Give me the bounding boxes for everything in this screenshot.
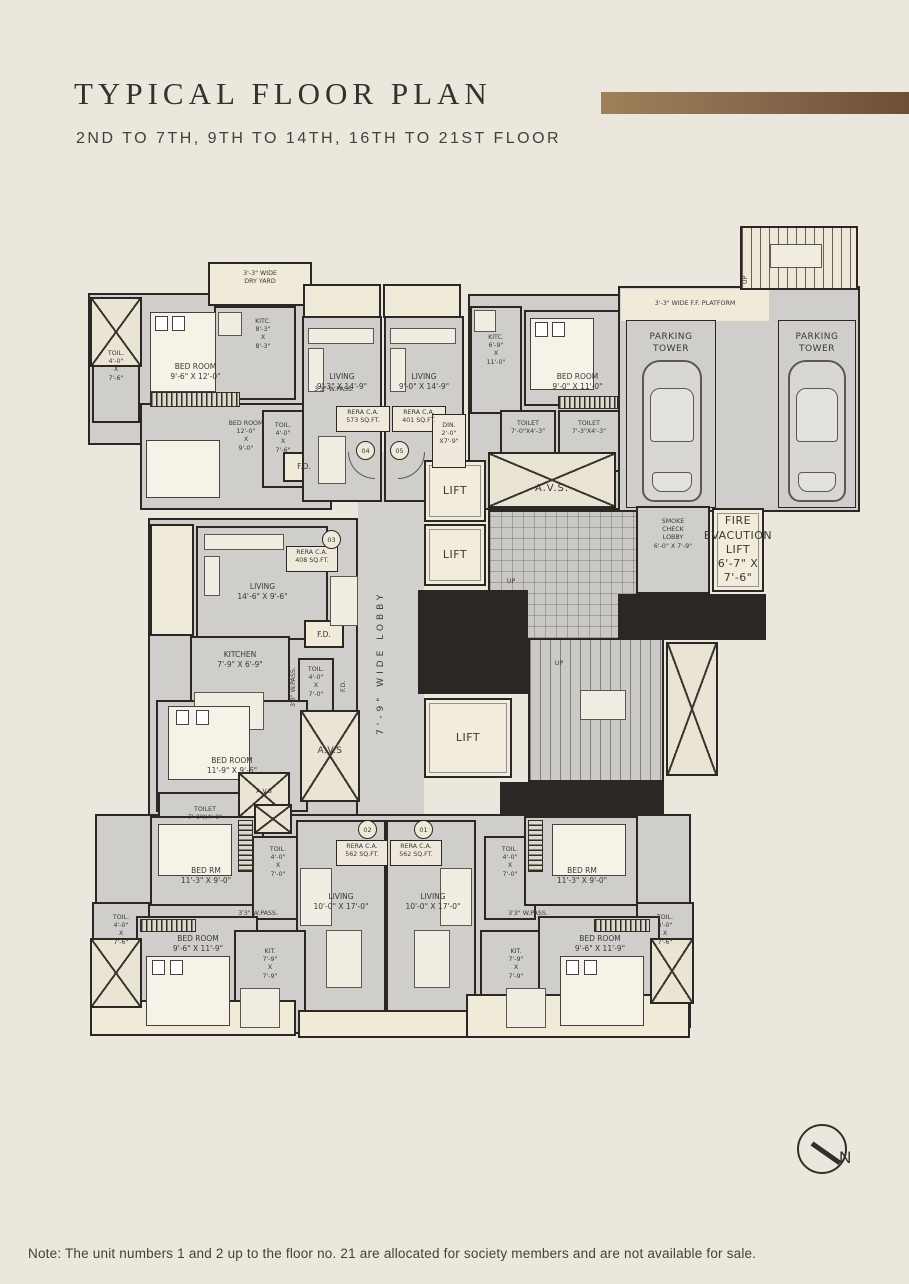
kitchen-appliance: [474, 310, 496, 332]
wpass-bottomleft-label: 3'3" W.PASS.: [222, 910, 294, 918]
unit-number-05: 05: [390, 441, 409, 460]
kitchen-topleft-label: KITC. 8'-3" X 8'-3": [238, 318, 288, 351]
wall-block: [418, 590, 528, 694]
wardrobe-hatch: [140, 919, 196, 932]
pillow: [584, 960, 597, 975]
lift-2: LIFT: [424, 524, 486, 586]
pillow: [566, 960, 579, 975]
dining-table: [318, 436, 346, 484]
kitchen-bottomleft-label: KIT. 7'-9" X 7'-9": [240, 948, 300, 981]
fire-lift-label: FIRE EVACUTION LIFT 6'-7" X 7'-6": [704, 514, 772, 585]
lift-1: LIFT: [424, 460, 486, 522]
dining-table: [330, 576, 358, 626]
north-label: N: [839, 1148, 851, 1168]
dry-yard-label: 3'-3" WIDE DRY YARD: [212, 270, 308, 286]
lift-3: LIFT: [424, 698, 512, 778]
living-top-right-label: LIVING 9'-0" X 14'-9": [388, 372, 460, 392]
up-label-lower: UP: [548, 660, 570, 668]
pillow: [172, 316, 185, 331]
wardrobe-hatch: [238, 820, 253, 872]
balcony-middleleft: [150, 524, 194, 636]
toilet-topright-1-label: TOILET 7'-0"X4'-3": [500, 420, 556, 436]
sofa: [204, 534, 284, 550]
parking-tower-right-label: PARKING TOWER: [780, 332, 854, 355]
footer-note: Note: The unit numbers 1 and 2 up to the…: [28, 1246, 888, 1261]
lift-3-label: LIFT: [456, 731, 480, 745]
toilet-topleft-edge-label: TOIL. 4'-0" X 7'-6": [94, 350, 138, 383]
bedroom-bottomleft-low-label: BED ROOM 9'-6" X 11'-9": [140, 934, 256, 954]
pillow: [152, 960, 165, 975]
rera-408-label: RERA C.A. 408 SQ.FT.: [286, 549, 338, 565]
toilet-topleft-inner-label: TOIL. 4'-0" X 7'-6": [264, 422, 302, 455]
bedroom-bottomright-low-label: BED ROOM 9'-6" X 11'-9": [542, 934, 658, 954]
parking-tower-left-label: PARKING TOWER: [630, 332, 712, 355]
balcony-top-right: [383, 284, 461, 318]
pillow: [535, 322, 548, 337]
shaft-small: [254, 804, 292, 834]
kitchen-counter: [240, 988, 280, 1028]
wardrobe-hatch: [558, 396, 618, 409]
lobby-label: 7'-9" WIDE LOBBY: [376, 555, 388, 770]
rera-562-right-label: RERA C.A. 562 SQ.FT.: [390, 843, 442, 859]
page-title: TYPICAL FLOOR PLAN: [74, 76, 492, 112]
toilet-bottomleft-mid-label: TOIL. 4'-0" X 7'-0": [256, 846, 300, 879]
bed-topleft-2: [146, 440, 220, 498]
bedroom-topright-label: BED ROOM 9'-0" X 11'-0": [535, 372, 620, 392]
unit-number-03: 03: [322, 530, 341, 549]
pillow: [552, 322, 565, 337]
bedrm-bottomright-label: BED RM 11'-3" X 9'-0": [528, 866, 636, 886]
up-label-top: UP: [742, 266, 750, 294]
bedroom-middle-label: BED ROOM 11'-9" X 9'-6": [172, 756, 292, 776]
living-top-left-label: LIVING 9'-3" X 14'-9": [306, 372, 378, 392]
kitchen-middle-label: KITCHEN 7'-9" X 6'-9": [196, 650, 284, 670]
toilet-middle-small-label: TOIL. 4'-0" X 7'-0": [300, 666, 332, 699]
bedroom-topleft-label: BED ROOM 9'-6" X 12'-0": [138, 362, 253, 382]
dining-table: [414, 930, 450, 988]
smoke-lobby-label: SMOKE CHECK LOBBY 6'-0" X 7'-9": [638, 518, 708, 551]
wardrobe-hatch: [150, 392, 240, 407]
living-bottomleft-label: LIVING 10'-0" X 17'-0": [298, 892, 384, 912]
ff-platform-label: 3'-3" WIDE F.F. PLATFORM: [621, 300, 769, 308]
unit-number-02: 02: [358, 820, 377, 839]
car: [642, 360, 702, 502]
toilet-bottomright-mid-label: TOIL. 4'-0" X 7'-0": [488, 846, 532, 879]
toilet-topright-2-label: TOILET 7'-3"X4'-3": [560, 420, 618, 436]
fd-middle-2-label: F.D.: [340, 672, 348, 700]
lift-1-label: LIFT: [443, 484, 467, 498]
balcony-top-left: [303, 284, 381, 318]
sofa: [308, 328, 374, 344]
stair-landing: [770, 244, 822, 268]
pillow: [155, 316, 168, 331]
dining-label: DIN. 2'-0" X7'-9": [432, 422, 466, 447]
stair-landing: [580, 690, 626, 720]
car: [788, 360, 846, 502]
living-middle-label: LIVING 14'-6" X 9'-6": [210, 582, 315, 602]
fire-evacuation-lift: FIRE EVACUTION LIFT 6'-7" X 7'-6": [712, 508, 764, 592]
avs-middle-big-label: A.V.S: [308, 746, 352, 758]
avs-middle-small-label: A.V.S: [244, 788, 284, 796]
wpass-bottomright-label: 3'3" W.PASS.: [492, 910, 564, 918]
toilet-middle-label: TOILET 7'-0"X4'-0": [160, 806, 250, 822]
avs-shaft-main: [488, 452, 616, 508]
wall-band: [618, 594, 766, 640]
balcony-bottom-middle: [298, 1010, 476, 1038]
kitchen-counter: [506, 988, 546, 1028]
rera-573-label: RERA C.A. 573 SQ.FT.: [336, 409, 390, 425]
kitchen-bottomright-label: KIT. 7'-9" X 7'-9": [486, 948, 546, 981]
dining-table: [326, 930, 362, 988]
fd-topleft-label: F.D.: [283, 462, 325, 472]
unit-number-01: 01: [414, 820, 433, 839]
wall-band-lower: [500, 782, 664, 816]
balcony-rail-bottomleft: [90, 938, 142, 1008]
lift-2-label: LIFT: [443, 548, 467, 562]
bedrm-bottomleft-label: BED RM 11'-3" X 9'-0": [152, 866, 260, 886]
avs-main-label: A.V.S.: [510, 482, 594, 495]
lobby-floor: [358, 452, 424, 822]
pillow: [170, 960, 183, 975]
service-shaft-right: [666, 642, 718, 776]
sofa: [390, 328, 456, 344]
pillow: [176, 710, 189, 725]
unit-number-04: 04: [356, 441, 375, 460]
fd-middle-label: F.D.: [304, 630, 344, 640]
up-label-core: UP: [500, 578, 522, 586]
toilet-bottomleft-edge-label: TOIL. 4'-0" X 7'-6": [96, 914, 146, 947]
kitchen-topright-label: KITC. 6'-9" X 11'-0": [470, 334, 522, 367]
living-bottomright-label: LIVING 10'-0" X 17'-0": [390, 892, 476, 912]
wpass-middle-label: 3'3" W.PASS.: [290, 645, 298, 730]
page-subtitle: 2ND TO 7TH, 9TH TO 14TH, 16TH TO 21ST FL…: [76, 130, 561, 148]
pillow: [196, 710, 209, 725]
accent-bar: [601, 92, 909, 114]
rera-562-left-label: RERA C.A. 562 SQ.FT.: [336, 843, 388, 859]
